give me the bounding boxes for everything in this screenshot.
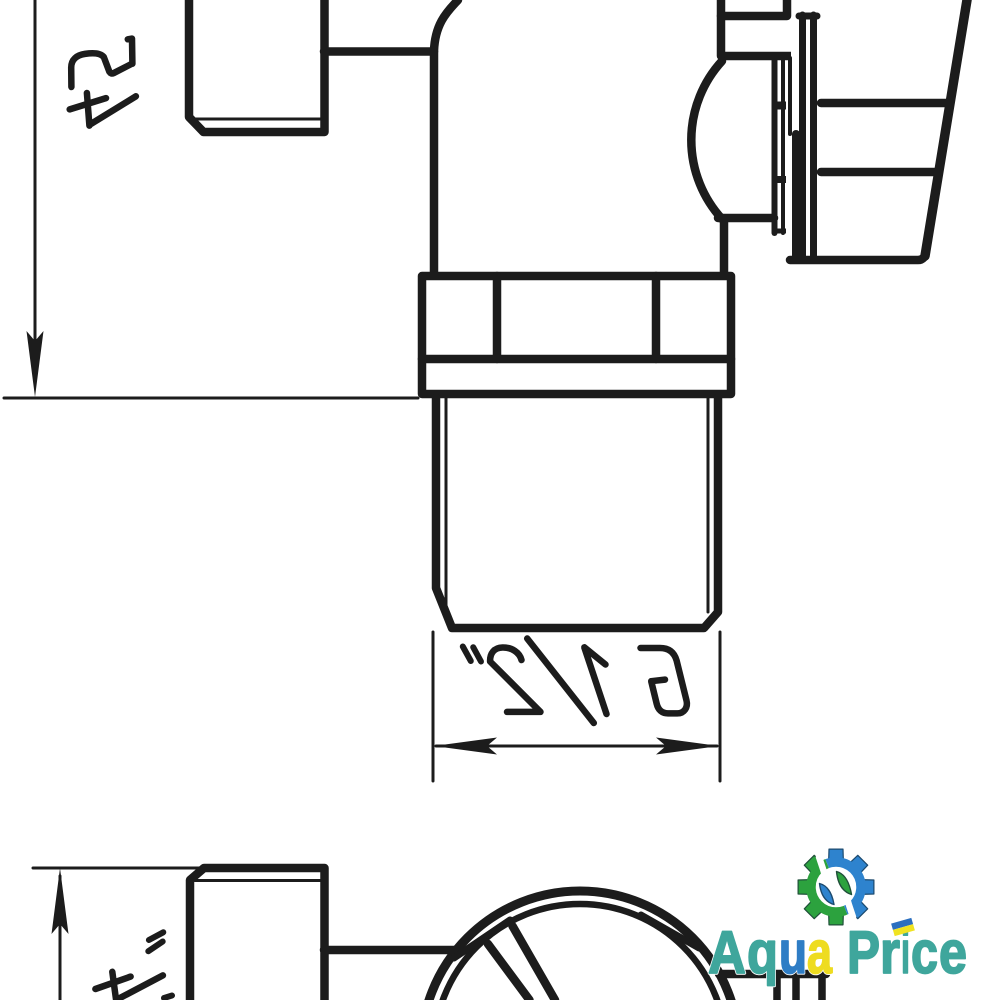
svg-text:A: A <box>708 919 746 986</box>
svg-text:q: q <box>747 919 778 986</box>
svg-text:e: e <box>939 919 967 986</box>
svg-text:u: u <box>779 919 807 986</box>
svg-text:a: a <box>807 919 832 986</box>
svg-text:P: P <box>847 919 880 986</box>
svg-text:c: c <box>911 919 938 986</box>
